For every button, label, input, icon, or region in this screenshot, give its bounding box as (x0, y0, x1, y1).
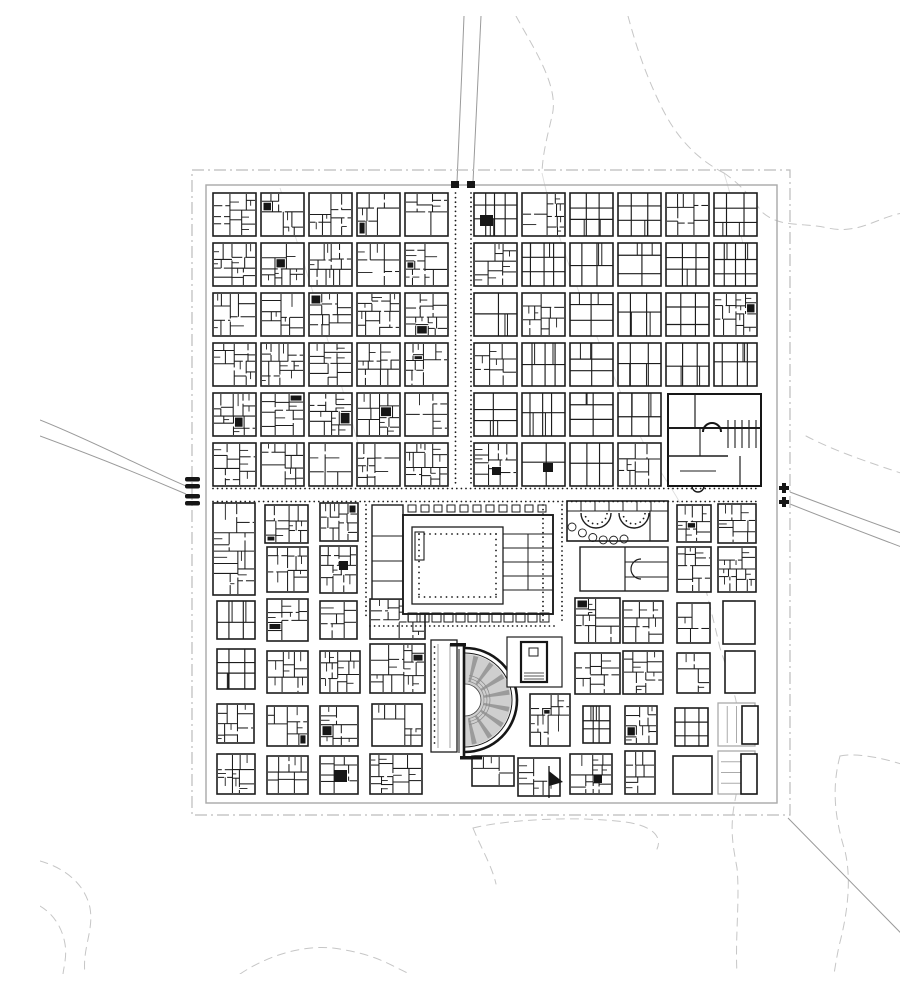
library (580, 547, 668, 591)
baths (668, 394, 761, 492)
temple-enclosure (507, 637, 562, 687)
portico-building (431, 640, 457, 752)
city-plan-svg (40, 16, 900, 974)
archaeological-site-plan (40, 16, 900, 974)
market (567, 501, 668, 544)
